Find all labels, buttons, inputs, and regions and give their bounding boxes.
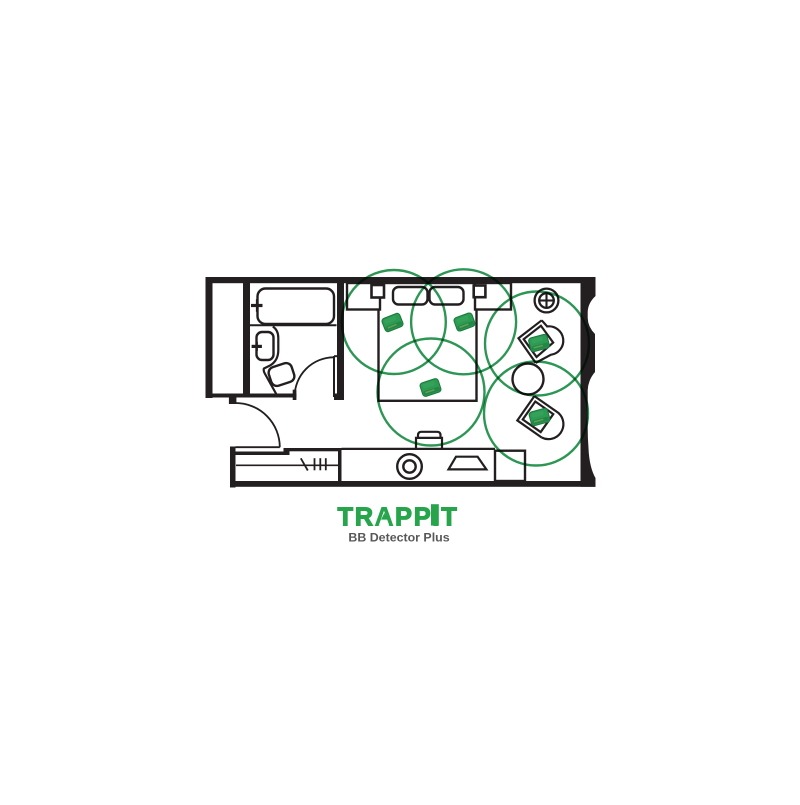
svg-text:TRAPPIT: TRAPPIT	[338, 504, 459, 532]
svg-text:BB Detector Plus: BB Detector Plus	[348, 530, 449, 544]
